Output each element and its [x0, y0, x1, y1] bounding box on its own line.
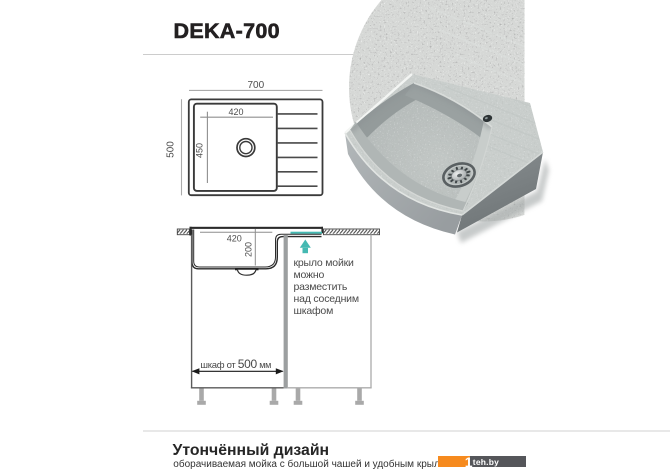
svg-text:700: 700 — [247, 80, 264, 91]
svg-text:500: 500 — [166, 141, 177, 158]
svg-text:420: 420 — [228, 107, 243, 117]
svg-text:шкаф от 500 мм: шкаф от 500 мм — [200, 357, 271, 371]
svg-text:420: 420 — [227, 234, 242, 244]
svg-text:450: 450 — [195, 143, 205, 158]
svg-text:200: 200 — [244, 242, 254, 257]
